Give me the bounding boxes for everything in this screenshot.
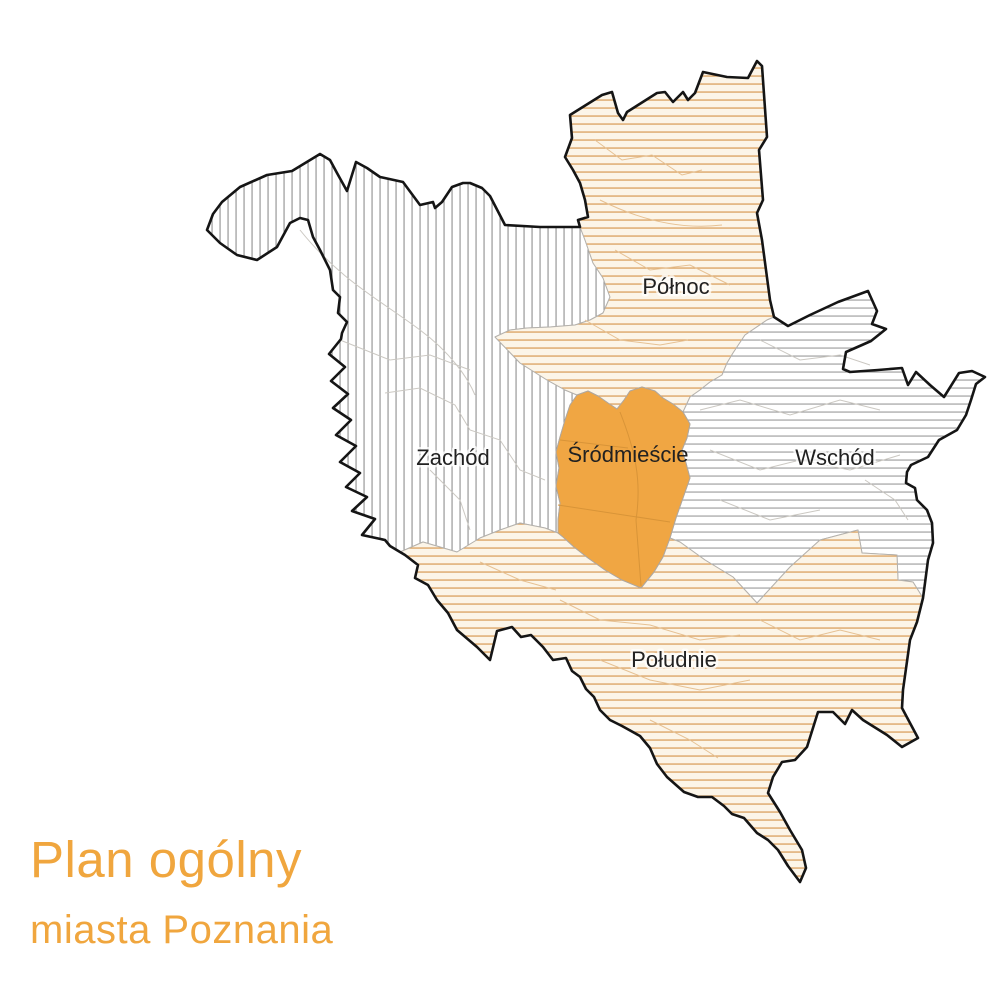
poster-title: Plan ogólny [30,830,302,889]
label-poludnie: Południe [631,647,717,672]
label-wschod: Wschód [795,445,874,470]
label-zachod: Zachód [416,445,489,470]
poster-subtitle: miasta Poznania [30,908,333,953]
district-poludnie [400,523,923,882]
poster-page: Północ Zachód Śródmieście Wschód Południ… [0,0,1000,1000]
label-srodmiescie: Śródmieście [567,442,688,467]
label-polnoc: Północ [642,274,709,299]
